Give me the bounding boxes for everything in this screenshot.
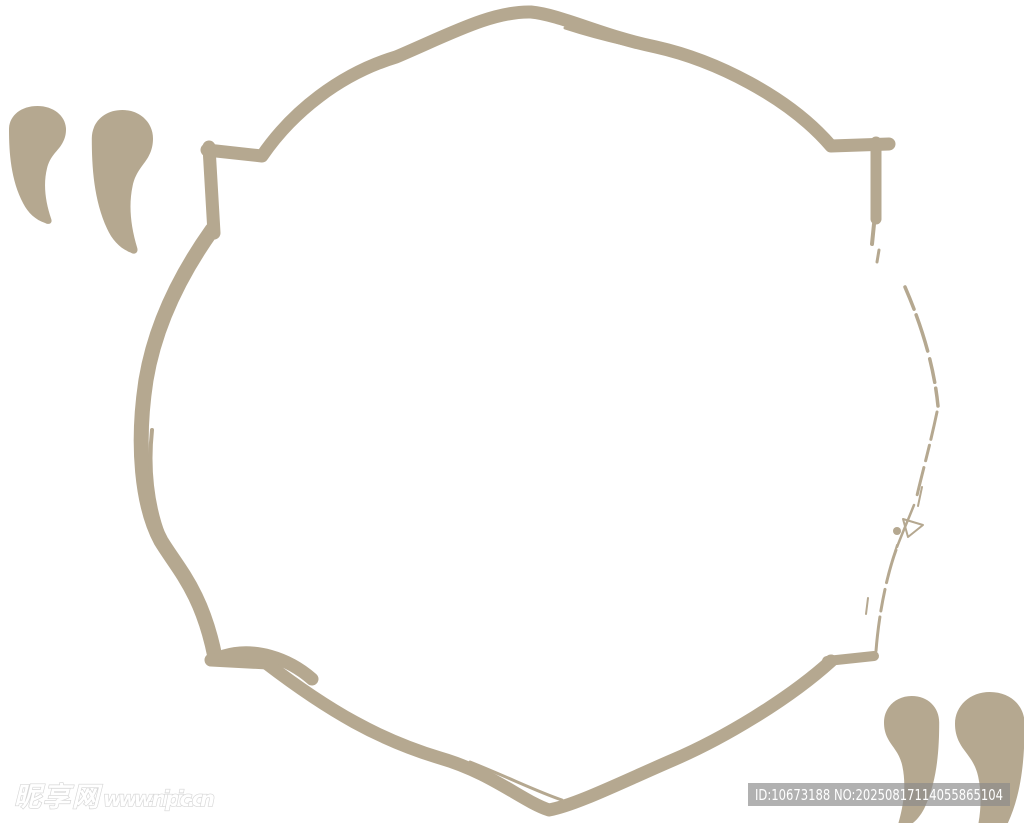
id-watermark-text: ID:10673188 NO:20250817114055865104 (755, 786, 1003, 804)
opening-quote-icon (92, 110, 153, 254)
frame-top-right-notch-dash (877, 250, 879, 262)
id-watermark: ID:10673188 NO:20250817114055865104 (748, 783, 1010, 806)
frame-top-edge (207, 12, 889, 156)
opening-quote-icon (9, 106, 66, 224)
leaf-knot (893, 527, 901, 535)
frame-graphic: 昵享网 www.nipic.cn ID:10673188 NO:20250817… (0, 0, 1024, 823)
frame-top-left-notch (209, 147, 214, 233)
canvas: 昵享网 www.nipic.cn ID:10673188 NO:20250817… (0, 0, 1024, 823)
site-url-watermark: www.nipic.cn (103, 787, 215, 811)
site-name-watermark: 昵享网 (14, 782, 103, 813)
frame-bottom-edge (266, 661, 831, 810)
frame-right-edge-sketch (876, 550, 896, 651)
frame-right-stray-dash (866, 598, 868, 614)
frame-border (141, 12, 938, 810)
frame-right-edge-sketch (916, 412, 937, 500)
frame-bottom-right-notch (827, 656, 874, 661)
frame-top-right-notch-dash (872, 224, 874, 244)
frame-right-edge-sketch (905, 287, 938, 406)
site-watermark: 昵享网 www.nipic.cn (14, 782, 215, 813)
